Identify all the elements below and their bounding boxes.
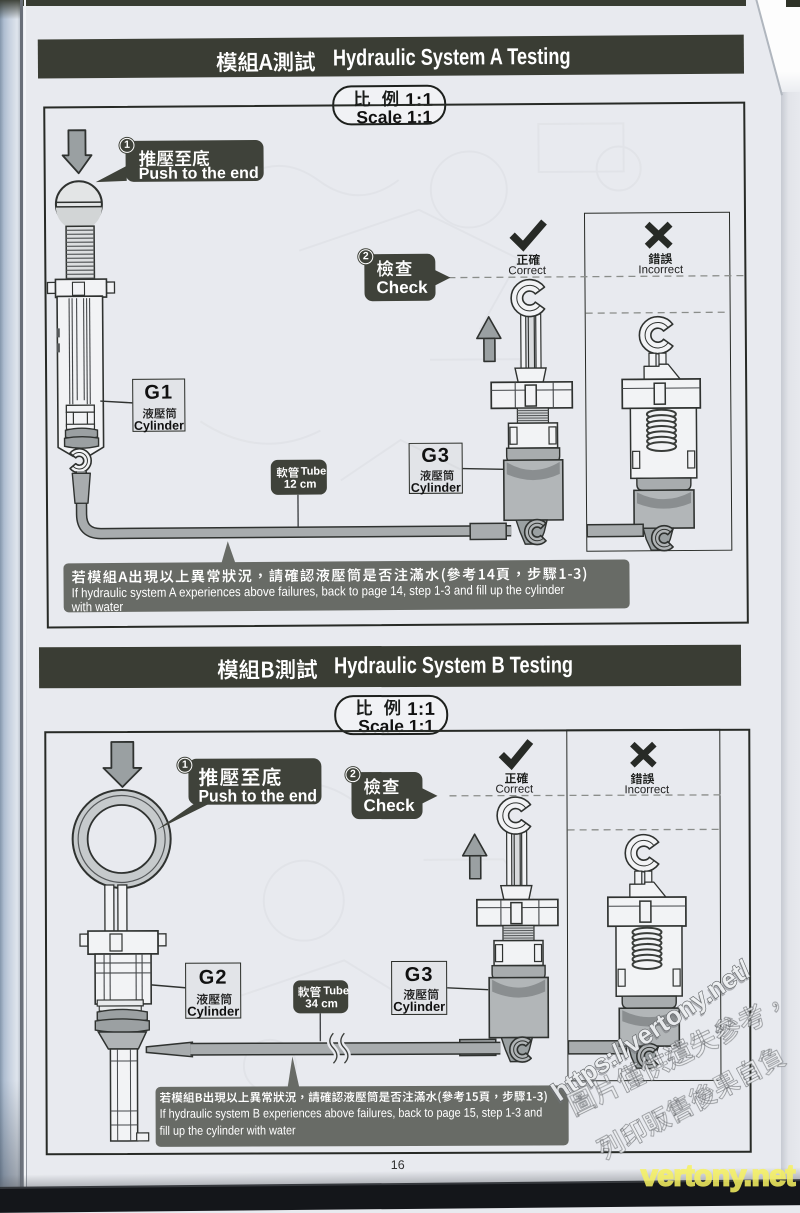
svg-text:vertony.net: vertony.net <box>641 1160 795 1193</box>
